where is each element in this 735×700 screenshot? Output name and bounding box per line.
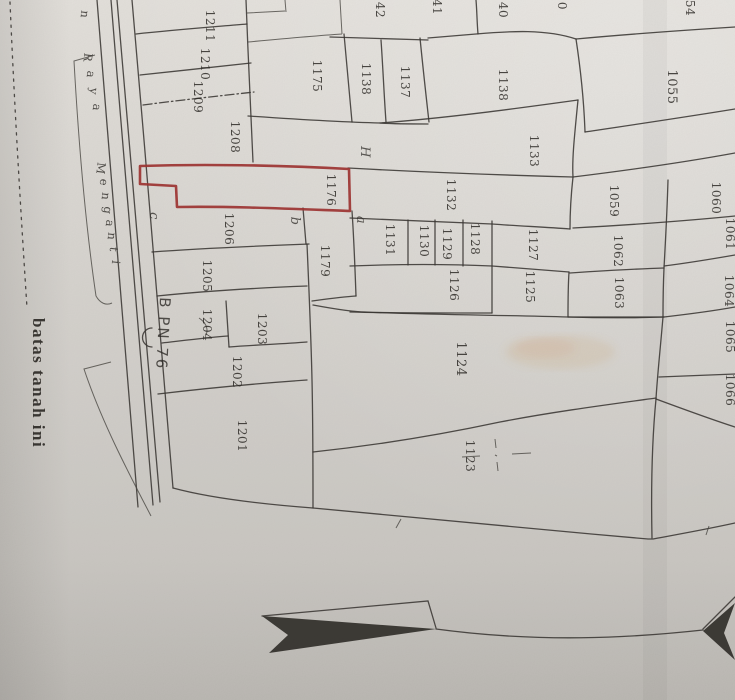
- parcel-label-1133: 1133: [527, 135, 541, 168]
- parcel-label-1063: 1063: [612, 277, 626, 310]
- parcel-label-1064: 1064: [722, 275, 735, 308]
- parcel-label-1066: 1066: [723, 374, 735, 407]
- parcel-label-1129: 1129: [440, 228, 454, 261]
- parcel-label-1062: 1062: [611, 235, 625, 268]
- partial-parcel-label-0: 0: [555, 2, 569, 10]
- parcel-label-1065: 1065: [723, 321, 735, 354]
- parcel-label-1059: 1059: [607, 185, 621, 218]
- partial-parcel-label-54: 54: [683, 0, 697, 16]
- parcel-label-1203: 1203: [255, 313, 269, 346]
- parcel-label-1204: 1204: [200, 309, 214, 342]
- road-name-letter-5: M: [93, 162, 108, 176]
- parcel-label-1201: 1201: [235, 420, 249, 453]
- parcel-label-1055: 1055: [664, 69, 679, 104]
- cadastral-map: 1211121012091208120612051204120312021201…: [0, 0, 735, 700]
- parcel-label-1125: 1125: [523, 271, 537, 304]
- parcel-label-1132: 1132: [444, 179, 458, 212]
- parcel-label-1208: 1208: [228, 121, 242, 154]
- parcel-label-1128: 1128: [468, 223, 482, 256]
- parcel-label-1126: 1126: [447, 269, 461, 302]
- parcel-label-1210: 1210: [198, 48, 212, 81]
- handwritten-mark-c: c: [146, 212, 161, 220]
- parcel-label-1060: 1060: [709, 182, 723, 215]
- parcel-label-1209: 1209: [191, 81, 205, 114]
- paper-grain: [0, 0, 735, 700]
- parcel-label-1127: 1127: [526, 229, 540, 262]
- parcel-label-1137: 1137: [398, 66, 412, 99]
- handwritten-mark-H: H: [357, 145, 372, 158]
- parcel-label-1176: 1176: [324, 174, 338, 207]
- parcel-label-1205: 1205: [200, 260, 214, 293]
- partial-parcel-label-40: 40: [496, 2, 510, 18]
- parcel-label-1061: 1061: [723, 218, 735, 251]
- faint-stamp-smudge: [505, 335, 615, 369]
- parcel-label-1131: 1131: [383, 224, 397, 257]
- handwritten-mark-a: a: [353, 216, 368, 224]
- parcel-label-1206: 1206: [222, 213, 236, 246]
- parcel-label-1124: 1124: [453, 341, 468, 376]
- scanned-cadastral-map-photo: 1211121012091208120612051204120312021201…: [0, 0, 735, 700]
- parcel-label-1138: 1138: [496, 69, 510, 102]
- parcel-label-1211: 1211: [203, 10, 217, 43]
- parcel-label-1202: 1202: [230, 356, 244, 389]
- parcel-label-1138: 1138: [359, 63, 373, 96]
- bpn-76-label: B PN 76: [152, 297, 174, 371]
- partial-parcel-label-41: 41: [430, 0, 444, 15]
- road-name-letter-1: R: [80, 52, 95, 63]
- handwritten-mark-b: b: [287, 217, 302, 226]
- batas-tanah-ini-label: batas tanah ini: [29, 318, 48, 448]
- parcel-label-1179: 1179: [318, 245, 332, 278]
- parcel-label-1175: 1175: [310, 60, 324, 93]
- parcel-label-1130: 1130: [417, 225, 431, 258]
- partial-parcel-label-42: 42: [373, 2, 387, 18]
- parcel-label-1123: 1123: [463, 440, 477, 473]
